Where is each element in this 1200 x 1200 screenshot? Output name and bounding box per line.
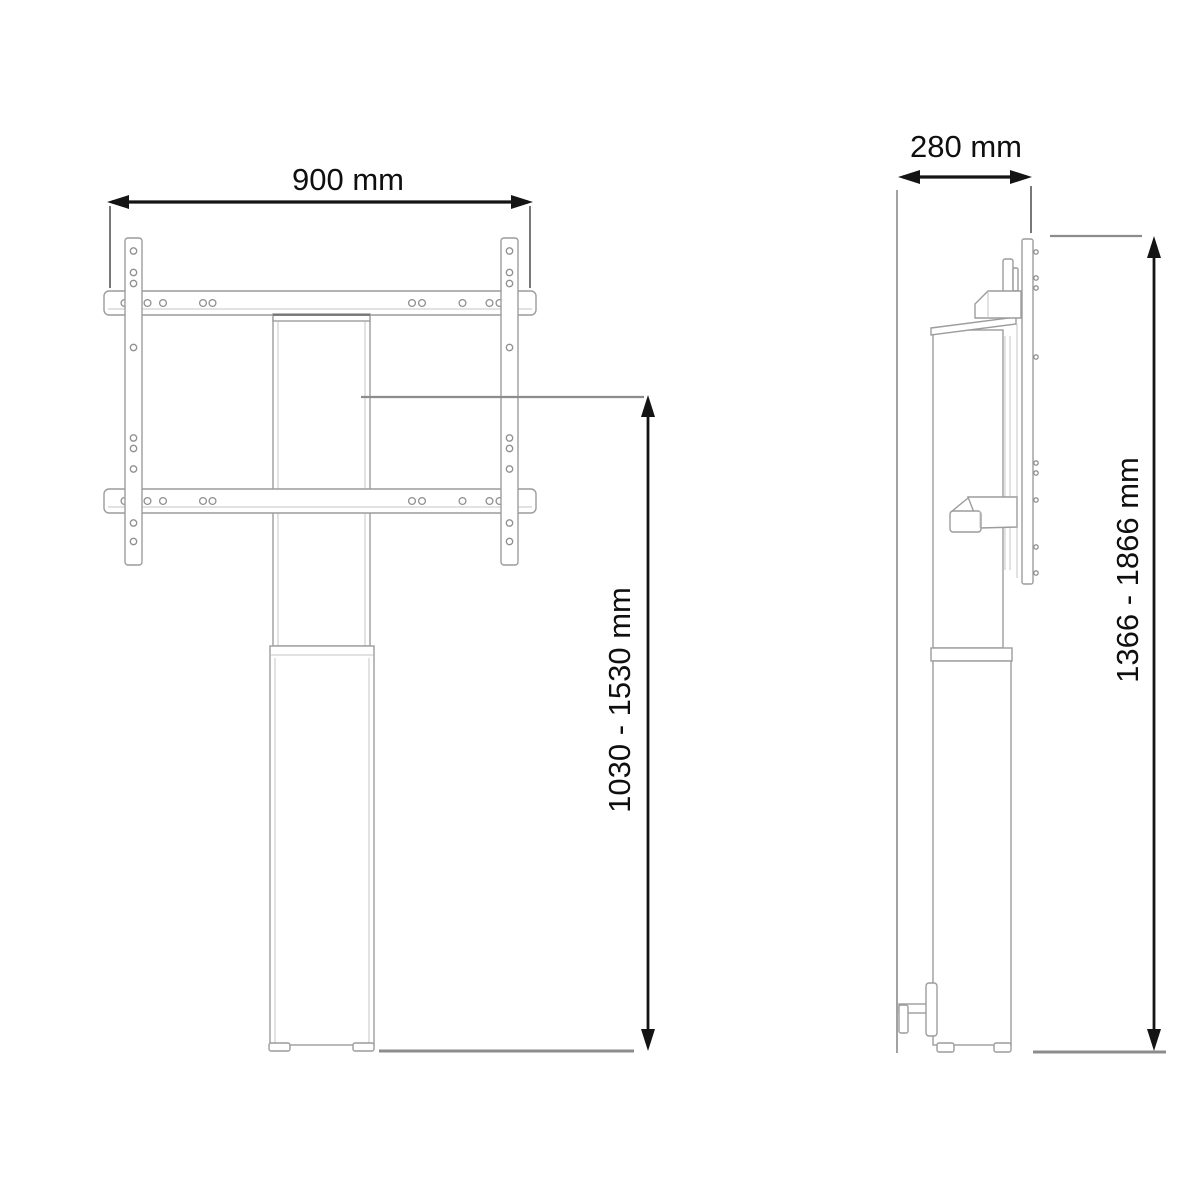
front-inner-column	[273, 318, 370, 646]
front-view	[104, 238, 536, 1051]
display-stand-dimension-diagram: 900 mm 1030 - 1530 mm	[0, 0, 1200, 1200]
arrowhead-up	[641, 395, 655, 417]
side-vesa-rail	[1022, 239, 1038, 584]
front-outer-column	[270, 646, 374, 1045]
front-upper-crossbar	[104, 291, 536, 315]
side-outer-column	[931, 648, 1012, 1045]
front-lower-crossbar	[104, 489, 536, 513]
front-width-label: 900 mm	[292, 162, 404, 197]
side-depth-dimension: 280 mm	[898, 129, 1032, 233]
dimension-drawing-page: 900 mm 1030 - 1530 mm	[0, 0, 1200, 1200]
arrowhead-down	[1147, 1029, 1161, 1051]
side-rail-holes	[1034, 250, 1038, 575]
side-inner-column	[931, 317, 1016, 648]
arrowhead-down	[641, 1029, 655, 1051]
side-wall-bracket	[899, 983, 937, 1036]
arrowhead-left	[898, 170, 920, 184]
front-left-vesa-rail	[125, 238, 142, 565]
side-height-dimension: 1366 - 1866 mm	[1033, 236, 1166, 1052]
side-mounting-plate	[1005, 324, 1017, 578]
side-view	[897, 190, 1038, 1053]
side-depth-label: 280 mm	[910, 129, 1022, 164]
arrowhead-up	[1147, 236, 1161, 258]
side-top-bracket	[975, 291, 1021, 318]
front-width-dimension: 900 mm	[107, 162, 533, 288]
side-height-label: 1366 - 1866 mm	[1110, 457, 1145, 683]
front-column-top-lip	[273, 314, 370, 321]
side-top-hook-bars	[1003, 259, 1018, 292]
front-height-label: 1030 - 1530 mm	[602, 587, 637, 813]
arrowhead-right	[1010, 170, 1032, 184]
front-right-vesa-rail	[501, 238, 518, 565]
